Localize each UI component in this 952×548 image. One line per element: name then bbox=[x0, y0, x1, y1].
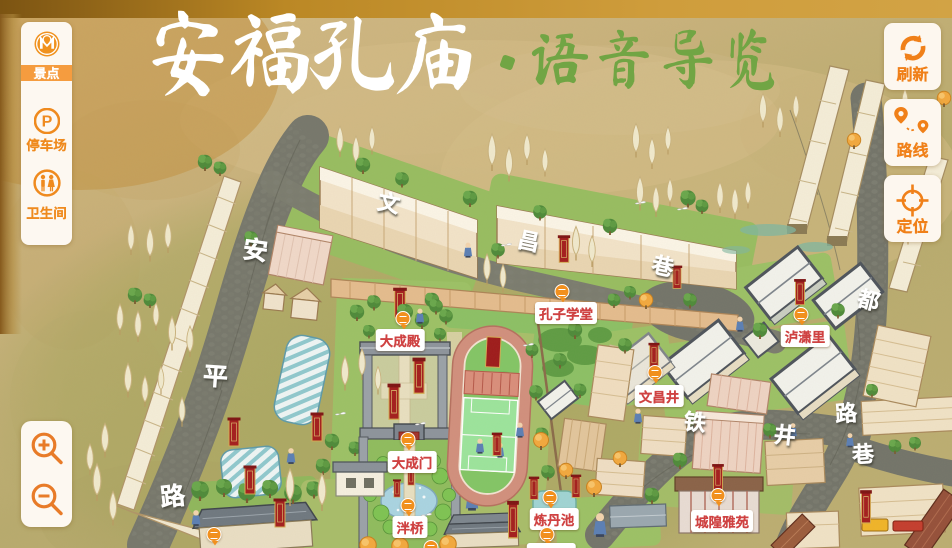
svg-text:P: P bbox=[41, 114, 52, 131]
